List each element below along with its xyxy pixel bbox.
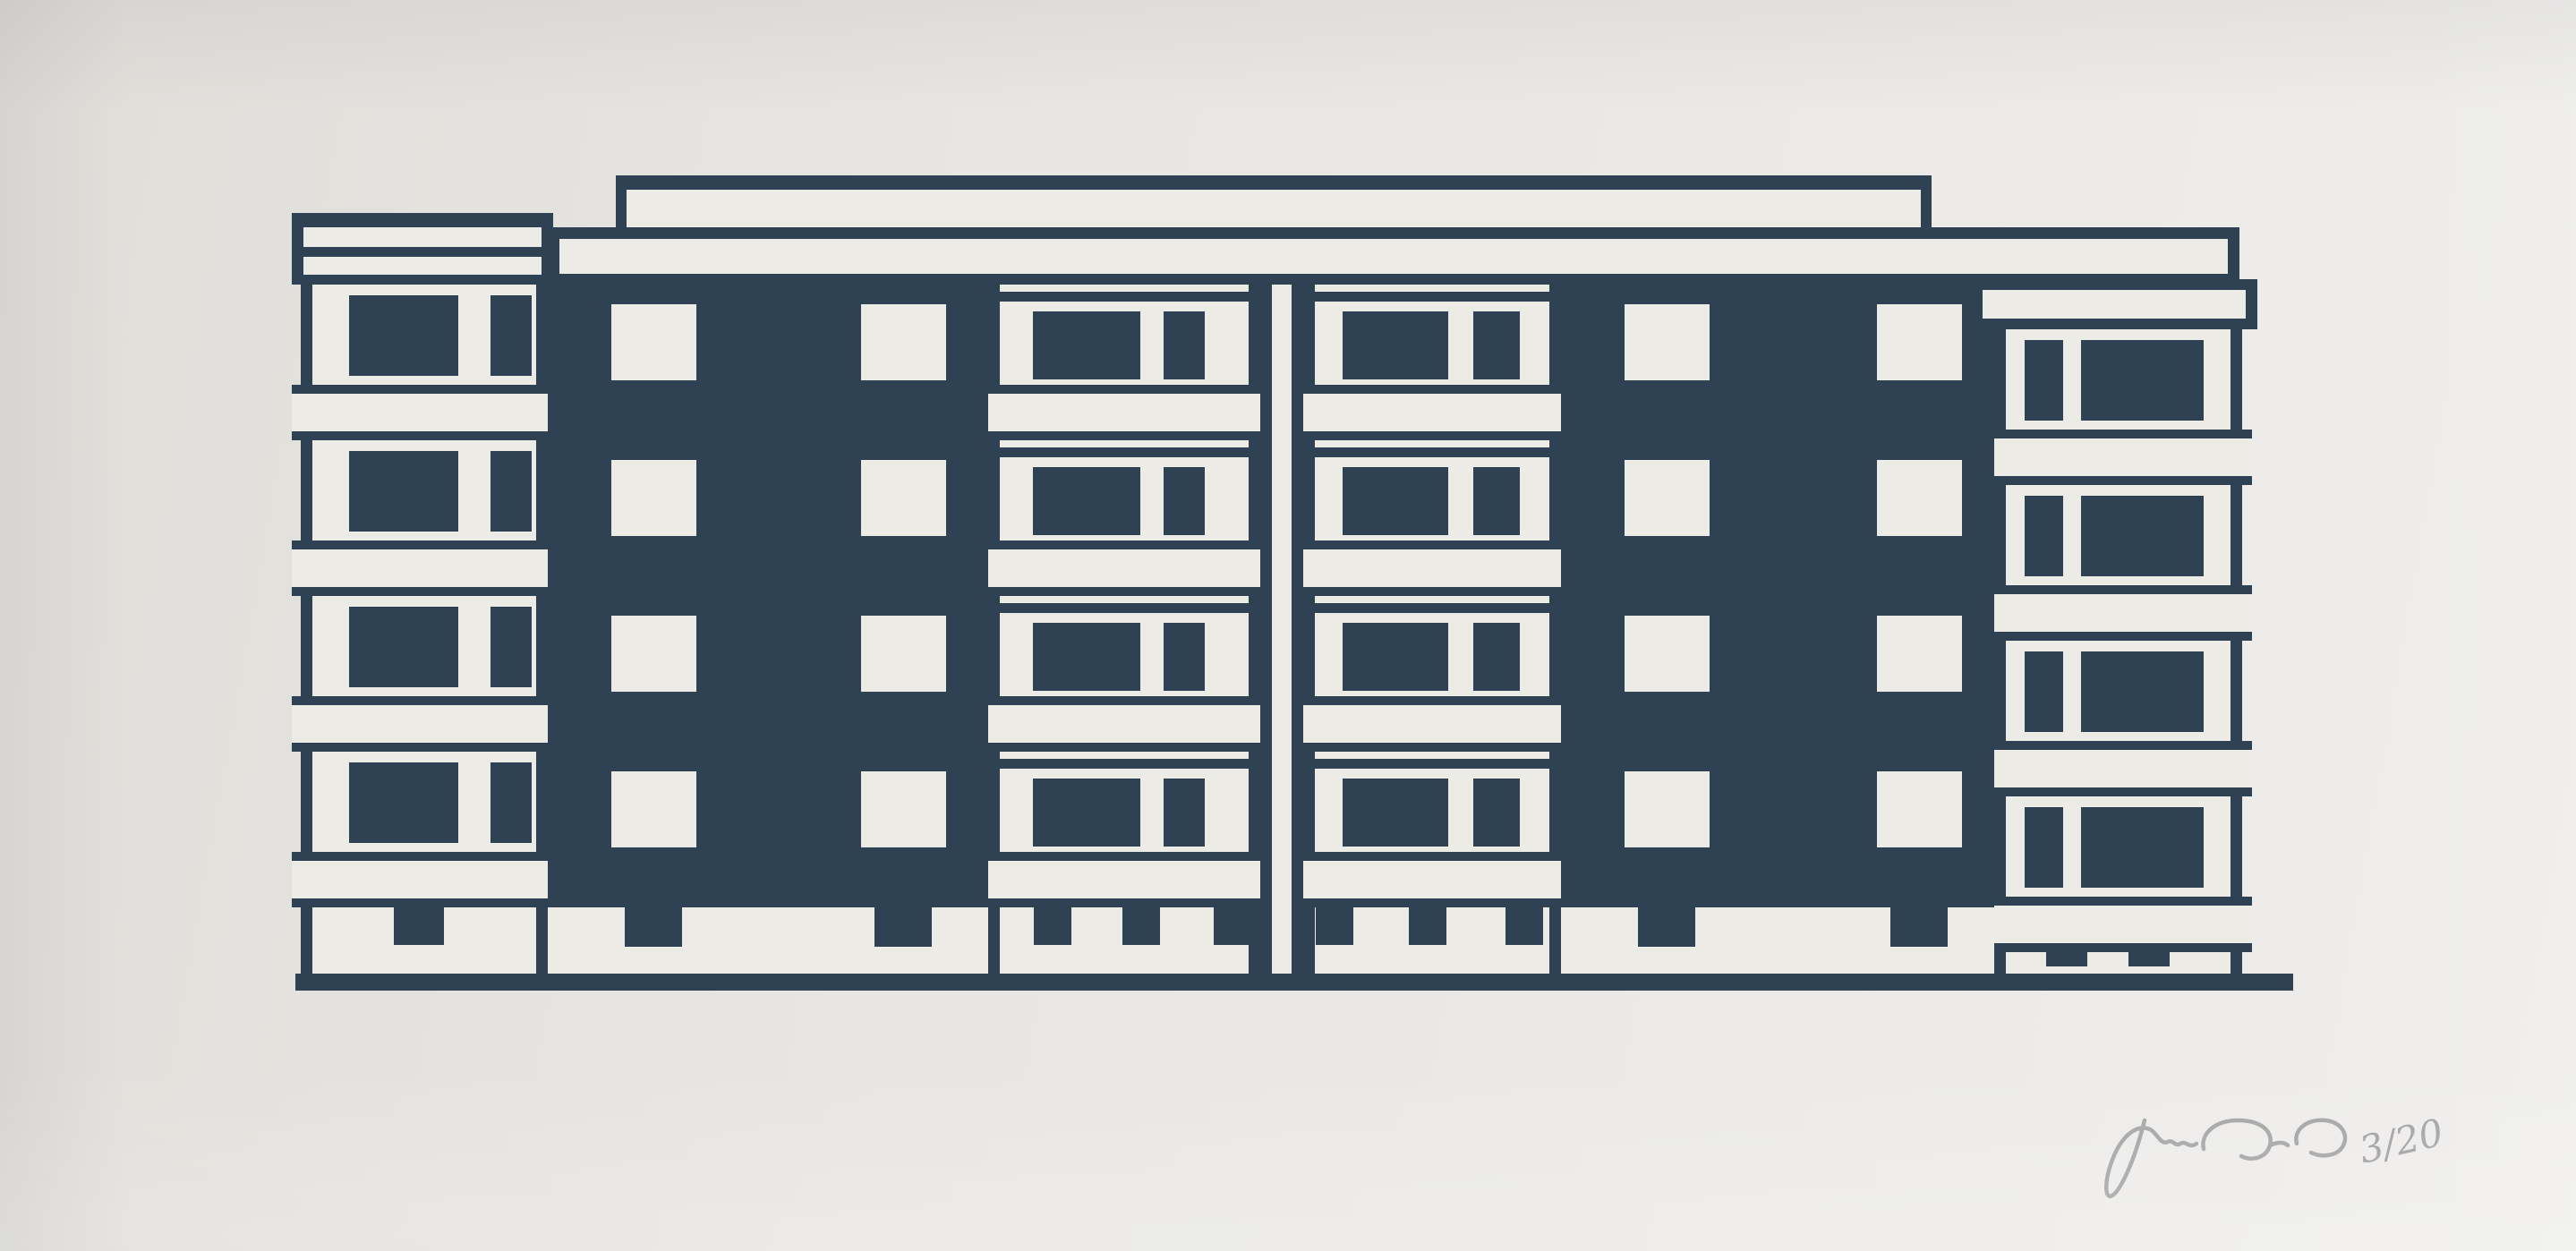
baseline <box>295 974 2293 991</box>
balcony-band-edge <box>1994 632 2252 641</box>
ground-tooth <box>1316 907 1353 945</box>
balcony-band <box>292 549 548 587</box>
balcony-band-edge <box>1994 943 2252 952</box>
balcony-band-edge <box>988 431 1260 440</box>
balcony-band-edge <box>1994 897 2252 906</box>
balcony-band <box>1303 549 1561 587</box>
balcony-band <box>1994 906 2252 943</box>
balcony-band-edge <box>1303 587 1561 596</box>
window-lintel <box>1000 603 1249 613</box>
balcony-section-mid-left <box>988 285 1260 974</box>
balcony-band-edge <box>1303 743 1561 752</box>
roof-band <box>559 239 2228 274</box>
window-pane <box>1473 311 1520 379</box>
edition-number: 3/20 <box>2355 1111 2447 1172</box>
ground-tooth <box>1638 907 1695 947</box>
facade-section-left <box>548 285 988 974</box>
window-pane <box>349 451 458 532</box>
balcony-section-right-tower <box>1994 285 2252 974</box>
facade-window <box>611 616 696 692</box>
window-pane <box>2081 340 2204 421</box>
balcony-band <box>1994 594 2252 632</box>
ground-tooth <box>394 907 444 945</box>
balcony-section-mid-right <box>1303 285 1561 974</box>
balcony-band-edge <box>988 898 1260 907</box>
window-pane <box>2081 651 2204 732</box>
ground-tooth <box>625 907 682 947</box>
balcony-band-edge <box>292 852 548 861</box>
facade-window <box>1625 460 1710 536</box>
seam-gap <box>1272 285 1292 974</box>
central-seam <box>1260 285 1303 974</box>
balcony-band-edge <box>988 540 1260 549</box>
roof-band <box>1983 290 2246 319</box>
window-lintel <box>1000 292 1249 302</box>
balcony-band-edge <box>292 385 548 394</box>
window-lintel <box>1000 447 1249 457</box>
facade-window <box>861 616 946 692</box>
window-pane <box>1343 779 1448 847</box>
facade-window <box>1877 304 1962 380</box>
window-pane <box>2025 807 2063 888</box>
window-pane <box>2081 807 2204 888</box>
window-pane <box>1033 623 1140 691</box>
ground-tooth <box>1034 907 1071 945</box>
window-lintel <box>1315 447 1549 457</box>
balcony-section-left-tower <box>292 285 548 974</box>
balcony-band-edge <box>1994 741 2252 750</box>
window-pane <box>1164 623 1205 691</box>
window-pane <box>1343 623 1448 691</box>
ground-tooth <box>1506 907 1543 945</box>
balcony-band <box>988 394 1260 431</box>
seam-edge <box>1260 285 1272 974</box>
balcony-band <box>1303 705 1561 743</box>
window-pane <box>2081 496 2204 576</box>
balcony-band-edge <box>988 743 1260 752</box>
balcony-band-edge <box>292 540 548 549</box>
window-pane <box>490 607 532 687</box>
window-pane <box>1164 779 1205 847</box>
window-pane <box>349 295 458 376</box>
seam-edge <box>1292 285 1303 974</box>
balcony-band <box>1994 438 2252 476</box>
facade-window <box>861 771 946 847</box>
window-pane <box>490 762 532 843</box>
artist-signature: 3/20 <box>2106 1111 2447 1196</box>
balcony-band-edge <box>1303 431 1561 440</box>
window-lintel <box>1315 292 1549 302</box>
balcony-band <box>1303 394 1561 431</box>
facade-window <box>1877 771 1962 847</box>
window-pane <box>1473 467 1520 535</box>
balcony-band <box>1994 750 2252 787</box>
window-pane <box>1164 311 1205 379</box>
window-pane <box>1033 467 1140 535</box>
window-pane <box>2025 651 2063 732</box>
building-illustration <box>292 175 2293 991</box>
ground-tooth <box>1890 907 1948 947</box>
balcony-band-edge <box>1994 476 2252 485</box>
facade-window <box>1877 616 1962 692</box>
balcony-band-edge <box>1994 787 2252 796</box>
facade-section-right <box>1561 285 1994 974</box>
ground-tooth <box>2128 952 2170 966</box>
facade-window <box>1877 460 1962 536</box>
print-illustration: 3/20 <box>0 0 2576 1251</box>
balcony-band <box>988 549 1260 587</box>
balcony-band-edge <box>292 696 548 705</box>
facade-window <box>861 460 946 536</box>
facade-window <box>611 304 696 380</box>
artwork-photo: 3/20 <box>0 0 2576 1251</box>
window-lintel <box>1315 603 1549 613</box>
window-pane <box>1164 467 1205 535</box>
window-pane <box>490 295 532 376</box>
balcony-band-edge <box>1303 540 1561 549</box>
balcony-band <box>988 705 1260 743</box>
balcony-band-edge <box>988 587 1260 596</box>
roof-band <box>627 190 1921 227</box>
window-lintel <box>1000 759 1249 769</box>
roof-band <box>303 227 542 247</box>
roof-band <box>303 257 542 275</box>
balcony-band <box>292 394 548 431</box>
balcony-band <box>292 705 548 743</box>
balcony-band <box>988 861 1260 898</box>
window-pane <box>2025 496 2063 576</box>
balcony-band-edge <box>292 431 548 440</box>
balcony-band-edge <box>1303 385 1561 394</box>
balcony-band-edge <box>292 743 548 752</box>
balcony-band <box>1303 861 1561 898</box>
window-pane <box>490 451 532 532</box>
window-pane <box>349 762 458 843</box>
balcony-band-edge <box>292 898 548 907</box>
signature-scrawl <box>2106 1120 2196 1196</box>
window-pane <box>1343 311 1448 379</box>
signature-loops <box>2203 1120 2345 1159</box>
balcony-band-edge <box>988 696 1260 705</box>
ground-tooth <box>1409 907 1446 945</box>
window-pane <box>1473 623 1520 691</box>
ground-line <box>295 974 2293 991</box>
facade-window <box>1625 616 1710 692</box>
ground-tooth <box>874 907 932 947</box>
balcony-band <box>292 861 548 898</box>
balcony-band-edge <box>1994 585 2252 594</box>
facade-window <box>611 771 696 847</box>
balcony-band-edge <box>988 385 1260 394</box>
balcony-band-edge <box>1303 898 1561 907</box>
window-lintel <box>1315 759 1549 769</box>
ground-tooth <box>1214 907 1251 945</box>
ground-tooth <box>1122 907 1160 945</box>
ground-tooth <box>2046 952 2087 966</box>
balcony-band-edge <box>988 852 1260 861</box>
window-pane <box>1033 311 1140 379</box>
facade-window <box>1625 304 1710 380</box>
balcony-band-edge <box>1303 852 1561 861</box>
balcony-band-edge <box>1303 696 1561 705</box>
window-pane <box>1343 467 1448 535</box>
facade-window <box>861 304 946 380</box>
balcony-band-edge <box>292 587 548 596</box>
window-pane <box>1033 779 1140 847</box>
facade-window <box>1625 771 1710 847</box>
window-pane <box>1473 779 1520 847</box>
balcony-band-edge <box>1994 430 2252 438</box>
window-pane <box>2025 340 2063 421</box>
facade-window <box>611 460 696 536</box>
window-pane <box>349 607 458 687</box>
